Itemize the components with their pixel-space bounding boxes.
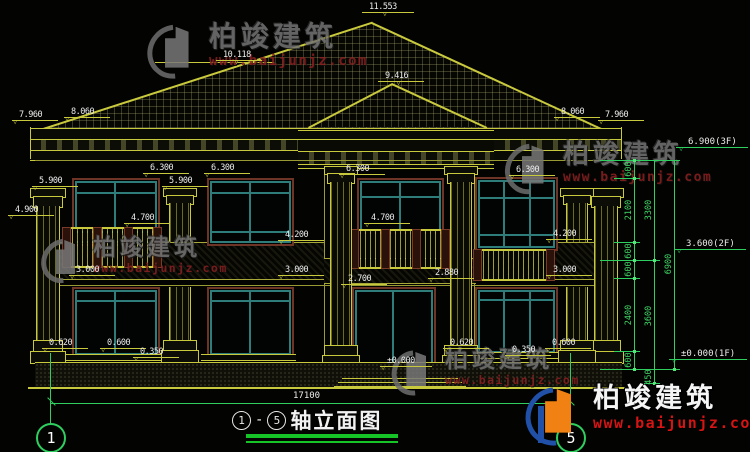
elevation-value: 3.000 (278, 265, 324, 275)
axis-line (50, 353, 51, 424)
floor-level-value: ±0.000(1F) (669, 349, 747, 359)
dimension-line (600, 369, 680, 370)
elevation-value: 0.350 (133, 347, 179, 357)
cornice-end-cap (30, 127, 31, 159)
triangle-down-icon: ▽ (672, 358, 676, 365)
railing-post (473, 249, 482, 281)
triangle-down-icon: ▽ (144, 172, 148, 179)
triangle-down-icon: ▽ (13, 119, 17, 126)
elevation-value: 2.700 (341, 274, 387, 284)
triangle-down-icon: ▽ (134, 356, 138, 363)
title-separator: - (255, 412, 263, 428)
triangle-down-icon: ▽ (396, 80, 400, 87)
elevation-value: 6.300 (204, 163, 250, 173)
triangle-down-icon: ▽ (679, 146, 683, 153)
elevation-value: 3.000 (69, 265, 115, 275)
elevation-value: 9.416 (378, 71, 424, 81)
overall-dimension-value: 17100 (293, 391, 320, 401)
elevation-value: 10.118 (216, 50, 262, 60)
triangle-down-icon: ▽ (65, 116, 69, 123)
title-underline (246, 441, 398, 443)
elevation-marker: 4.700▽ (124, 213, 170, 224)
balcony-railing-center (350, 229, 450, 269)
railing-post (412, 229, 421, 269)
elevation-marker: 7.960▽ (598, 110, 644, 121)
elevation-value: 4.200 (278, 230, 324, 240)
porch-column-right (450, 182, 472, 345)
window-mullion (249, 292, 251, 353)
watermark-url: www.baijunjz.com (593, 414, 750, 432)
elevation-marker: 7.960▽ (12, 110, 58, 121)
elevation-marker: 0.350▽ (133, 347, 179, 358)
triangle-down-icon: ▽ (381, 365, 385, 372)
triangle-down-icon: ▽ (163, 185, 167, 192)
elevation-value: 6.300 (339, 164, 385, 174)
dimension-value: 600 (624, 345, 634, 375)
elevation-value: 0.620 (42, 338, 88, 348)
balcony-railing-right (473, 249, 555, 281)
porch-cornice-dentils (298, 151, 494, 165)
dimension-value: 6900 (664, 249, 674, 279)
elevation-value: 8.060 (64, 107, 110, 117)
elevation-marker: 6.300▽ (339, 164, 385, 175)
dimension-line (634, 160, 635, 369)
dimension-line (674, 160, 675, 369)
floor-level-flag: ±0.000(1F)▽ (669, 349, 747, 360)
elevation-marker: 2.700▽ (341, 274, 387, 285)
elevation-marker: 8.060▽ (64, 107, 110, 118)
title-text: 轴立面图 (290, 405, 382, 435)
dimension-value: 2100 (624, 195, 634, 225)
brand-watermark: 柏竣建筑 www.baijunjz.com (524, 384, 750, 448)
window-mullion (77, 192, 155, 194)
window-mullion (480, 234, 553, 236)
triangle-down-icon: ▽ (599, 119, 603, 126)
window-sill (201, 354, 296, 361)
triangle-down-icon: ▽ (43, 347, 47, 354)
triangle-down-icon: ▽ (340, 173, 344, 180)
watermark-brand: 柏竣建筑 (93, 236, 228, 261)
elevation-marker: 6.300▽ (509, 165, 555, 176)
watermark-text: 柏竣建筑 www.baijunjz.com (593, 384, 750, 432)
triangle-down-icon: ▽ (101, 347, 105, 354)
elevation-marker: 0.600▽ (545, 338, 591, 349)
elevation-value: 7.960 (12, 110, 58, 120)
floor-level-flag: 3.600(2F)▽ (674, 239, 746, 250)
elevation-value: 5.900 (162, 176, 208, 186)
triangle-down-icon: ▽ (547, 274, 551, 281)
elevation-marker: 11.553▽ (362, 2, 414, 13)
triangle-down-icon: ▽ (444, 347, 448, 354)
elevation-marker: 4.200▽ (546, 229, 592, 240)
dimension-value: 600 (624, 154, 634, 184)
corner-column-right (594, 206, 618, 362)
floor-level-value: 3.600(2F) (674, 239, 746, 249)
triangle-down-icon: ▽ (506, 354, 510, 361)
triangle-down-icon: ▽ (365, 222, 369, 229)
triangle-down-icon: ▽ (677, 248, 681, 255)
triangle-down-icon: ▽ (429, 277, 433, 284)
elevation-marker: 4.700▽ (364, 213, 410, 224)
baijun-logo-icon (40, 236, 86, 286)
elevation-value: 4.900 (8, 205, 54, 215)
elevation-marker: 4.200▽ (278, 230, 324, 241)
elevation-value: ±0.000 (380, 356, 432, 366)
watermark-text: 柏竣建筑 www.baijunjz.com (209, 22, 368, 69)
elevation-value: 11.553 (362, 2, 414, 12)
floor-level-flag: 6.900(3F)▽ (676, 137, 748, 148)
axis-number: 1 (46, 429, 55, 447)
logo-bar-icon (538, 406, 544, 443)
elevation-marker: ±0.000▽ (380, 356, 432, 367)
dimension-tick (653, 259, 656, 262)
axis-bubble-1: 1 (36, 423, 66, 452)
mid-pier-left-1f (169, 287, 191, 340)
triangle-down-icon: ▽ (546, 347, 550, 354)
dimension-value: 600 (624, 254, 634, 284)
elevation-marker: 10.118▽ (216, 50, 262, 61)
elevation-value: 4.700 (124, 213, 170, 223)
floor-level-value: 6.900(3F) (676, 137, 748, 147)
elevation-marker: 5.900▽ (162, 176, 208, 187)
axis-end-bubble-icon: 5 (267, 411, 286, 430)
dimension-end-tick (47, 397, 55, 405)
elevation-marker: 3.000▽ (69, 265, 115, 276)
triangle-down-icon: ▽ (70, 274, 74, 281)
elevation-value: 6.300 (143, 163, 189, 173)
dimension-value: 3300 (644, 195, 654, 225)
railing-post (441, 229, 450, 269)
dimension-value: 2400 (624, 300, 634, 330)
elevation-value: 0.600 (545, 338, 591, 348)
elevation-marker: 2.880▽ (428, 268, 474, 279)
elevation-marker: 6.300▽ (204, 163, 250, 174)
window-mullion (77, 300, 155, 302)
watermark: 柏竣建筑 www.baijunjz.com (40, 236, 228, 286)
railing-post (381, 229, 390, 269)
elevation-value: 5.900 (32, 176, 78, 186)
title-underline (246, 434, 398, 438)
dimension-tick (673, 368, 676, 371)
triangle-down-icon: ▽ (547, 238, 551, 245)
window-1f-left-b (207, 287, 294, 358)
elevation-value: 2.880 (428, 268, 474, 278)
elevation-marker: 8.060▽ (554, 107, 600, 118)
window-mullion (249, 183, 251, 241)
triangle-down-icon: ▽ (279, 274, 283, 281)
window-mullion (362, 196, 439, 198)
elevation-value: 4.200 (546, 229, 592, 239)
elevation-marker: 4.900▽ (8, 205, 54, 216)
watermark-brand: 柏竣建筑 (593, 384, 750, 414)
triangle-down-icon: ▽ (279, 239, 283, 246)
axis-start-bubble-icon: 1 (232, 411, 251, 430)
window-mullion (503, 292, 505, 351)
elevation-value: 6.300 (509, 165, 555, 175)
window-mullion (529, 292, 531, 351)
elevation-marker: 3.000▽ (278, 265, 324, 276)
elevation-value: 3.000 (546, 265, 592, 275)
triangle-down-icon: ▽ (555, 116, 559, 123)
triangle-down-icon: ▽ (383, 11, 387, 18)
elevation-marker: 3.000▽ (546, 265, 592, 276)
elevation-marker: 9.416▽ (378, 71, 424, 82)
axis-number: 1 (238, 414, 245, 427)
dimension-line (600, 160, 680, 161)
triangle-down-icon: ▽ (510, 174, 514, 181)
elevation-drawing: 柏竣建筑 www.baijunjz.com 柏竣建筑 www.baijunjz.… (0, 0, 750, 452)
porch-cornice (298, 130, 494, 169)
mid-pier-right-1f (566, 287, 588, 340)
dimension-line (654, 160, 655, 383)
drawing-title: 1 - 5 轴立面图 (232, 405, 382, 435)
window-2f-center (357, 178, 444, 234)
triangle-down-icon: ▽ (125, 222, 129, 229)
overall-dimension-line (50, 403, 571, 404)
elevation-value: 4.700 (364, 213, 410, 223)
elevation-marker: 0.620▽ (443, 338, 489, 349)
porch-column-left (330, 182, 352, 345)
baijun-logo-icon (146, 22, 202, 82)
elevation-value: 8.060 (554, 107, 600, 117)
elevation-value: 0.620 (443, 338, 489, 348)
triangle-down-icon: ▽ (342, 283, 346, 290)
watermark-brand: 柏竣建筑 (209, 22, 368, 53)
dimension-value: 3600 (644, 301, 654, 331)
elevation-marker: 0.620▽ (42, 338, 88, 349)
elevation-value: 7.960 (598, 110, 644, 120)
axis-number: 5 (274, 414, 281, 427)
elevation-marker: 5.900▽ (32, 176, 78, 187)
baijun-logo-icon (524, 384, 586, 448)
triangle-down-icon: ▽ (9, 214, 13, 221)
window-mullion (212, 192, 289, 194)
elevation-marker: 6.300▽ (143, 163, 189, 174)
triangle-down-icon: ▽ (234, 59, 238, 66)
window-mullion (212, 300, 289, 302)
triangle-down-icon: ▽ (33, 185, 37, 192)
window-mullion (480, 299, 553, 301)
window-mullion (480, 197, 553, 199)
porch-cornice-line (298, 139, 494, 140)
